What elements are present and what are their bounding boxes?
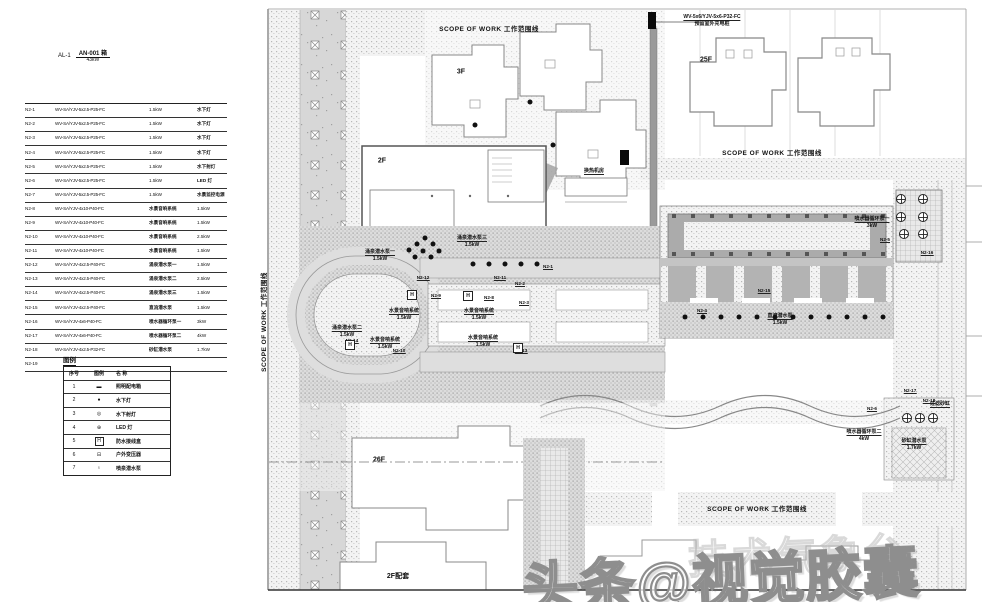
plan-overlay: SCOPE OF WORK 工作范围线SCOPE OF WORK 工作范围线SC… [0, 0, 1000, 602]
circuit-tag: N2-3 [519, 300, 529, 306]
junction-box-symbol: H [513, 343, 523, 353]
circuit-tag: N2-4 [697, 308, 707, 314]
pump-symbol [896, 212, 906, 222]
building-label: 3F [457, 69, 465, 76]
circuit-tag: N2-8 [484, 295, 494, 301]
distribution-box-symbol [620, 150, 629, 165]
pump-symbol [902, 413, 912, 423]
cad-drawing-sheet: AL-1 AN-001 箱 43kW N2-1WV-SA/YJV-5x2.5-P… [0, 0, 1000, 602]
equipment-callout: 涌泉潜水泵一1.5kW [365, 249, 395, 263]
underwater-light-symbol [503, 262, 508, 267]
junction-box-symbol: H [345, 340, 355, 350]
circuit-tag: N2-10 [393, 348, 406, 354]
circuit-tag: N2-6 [867, 406, 877, 412]
scope-of-work-label: SCOPE OF WORK 工作范围线 [707, 503, 807, 513]
underwater-light-symbol [471, 262, 476, 267]
circuit-tag: N2-2 [515, 281, 525, 287]
equipment-callout: 涌泉潜水泵二1.5kW [332, 325, 362, 339]
underwater-light-symbol [551, 143, 556, 148]
underwater-light-symbol [701, 315, 706, 320]
underwater-light-symbol [737, 315, 742, 320]
underwater-light-symbol [773, 315, 778, 320]
circuit-tag: N2-12 [417, 275, 430, 281]
circuit-tag: N2-9 [431, 293, 441, 299]
equipment-callout: 喷水器循环泵二4kW [846, 429, 881, 443]
underwater-light-symbol [863, 315, 868, 320]
scope-of-work-label: SCOPE OF WORK 工作范围线 [258, 272, 268, 372]
distribution-box-symbol [648, 12, 656, 29]
underwater-light-symbol [431, 242, 436, 247]
equipment-callout: WV-5x6/YJV-5x6-P32-FC预留室外充电桩 [683, 14, 740, 28]
underwater-light-symbol [827, 315, 832, 320]
scope-of-work-label: SCOPE OF WORK 工作范围线 [722, 147, 822, 157]
underwater-light-symbol [487, 262, 492, 267]
junction-box-symbol: H [463, 291, 473, 301]
junction-box-symbol: H [407, 290, 417, 300]
underwater-light-symbol [881, 315, 886, 320]
building-label: 25F [700, 57, 712, 64]
pump-symbol [899, 229, 909, 239]
pump-symbol [915, 413, 925, 423]
equipment-callout: 直流潜水泵1.5kW [767, 313, 792, 327]
equipment-callout: 砂缸潜水泵1.7kW [901, 438, 926, 452]
underwater-light-symbol [421, 249, 426, 254]
circuit-tag: N2-1 [543, 264, 553, 270]
circuit-tag: N2-11 [494, 275, 506, 281]
pump-symbol [918, 194, 928, 204]
circuit-tag: N2-15 [758, 288, 771, 294]
underwater-light-symbol [473, 123, 478, 128]
pump-symbol [918, 212, 928, 222]
underwater-light-symbol [413, 255, 418, 260]
underwater-light-symbol [437, 249, 442, 254]
underwater-light-symbol [755, 315, 760, 320]
underwater-light-symbol [407, 248, 412, 253]
underwater-light-symbol [845, 315, 850, 320]
equipment-callout: 水景音响系统1.5kW [464, 308, 494, 322]
underwater-light-symbol [809, 315, 814, 320]
pump-symbol [918, 229, 928, 239]
underwater-light-symbol [423, 236, 428, 241]
underwater-light-symbol [719, 315, 724, 320]
underwater-light-symbol [415, 242, 420, 247]
pump-symbol [896, 194, 906, 204]
equipment-callout: 水景音响系统1.5kW [468, 335, 498, 349]
equipment-callout: 喷水器循环泵一3kW [854, 216, 889, 230]
underwater-light-symbol [519, 262, 524, 267]
building-label: 26F [373, 457, 385, 464]
underwater-light-symbol [791, 315, 796, 320]
circuit-tag: N2-17 [904, 388, 917, 394]
equipment-callout: 换热机房 [584, 168, 604, 175]
equipment-callout: 水景音响系统1.5kW [389, 308, 419, 322]
pump-symbol [928, 413, 938, 423]
circuit-tag: N2-18 [923, 398, 936, 404]
underwater-light-symbol [429, 255, 434, 260]
circuit-tag: N2-5 [880, 237, 890, 243]
building-label: 2F配套 [387, 571, 409, 581]
underwater-light-symbol [528, 100, 533, 105]
building-label: 2F [378, 158, 386, 165]
circuit-tag: N2-16 [921, 250, 934, 256]
underwater-light-symbol [535, 262, 540, 267]
underwater-light-symbol [683, 315, 688, 320]
equipment-callout: 涌泉潜水泵三1.5kW [457, 235, 487, 249]
scope-of-work-label: SCOPE OF WORK 工作范围线 [439, 23, 539, 33]
